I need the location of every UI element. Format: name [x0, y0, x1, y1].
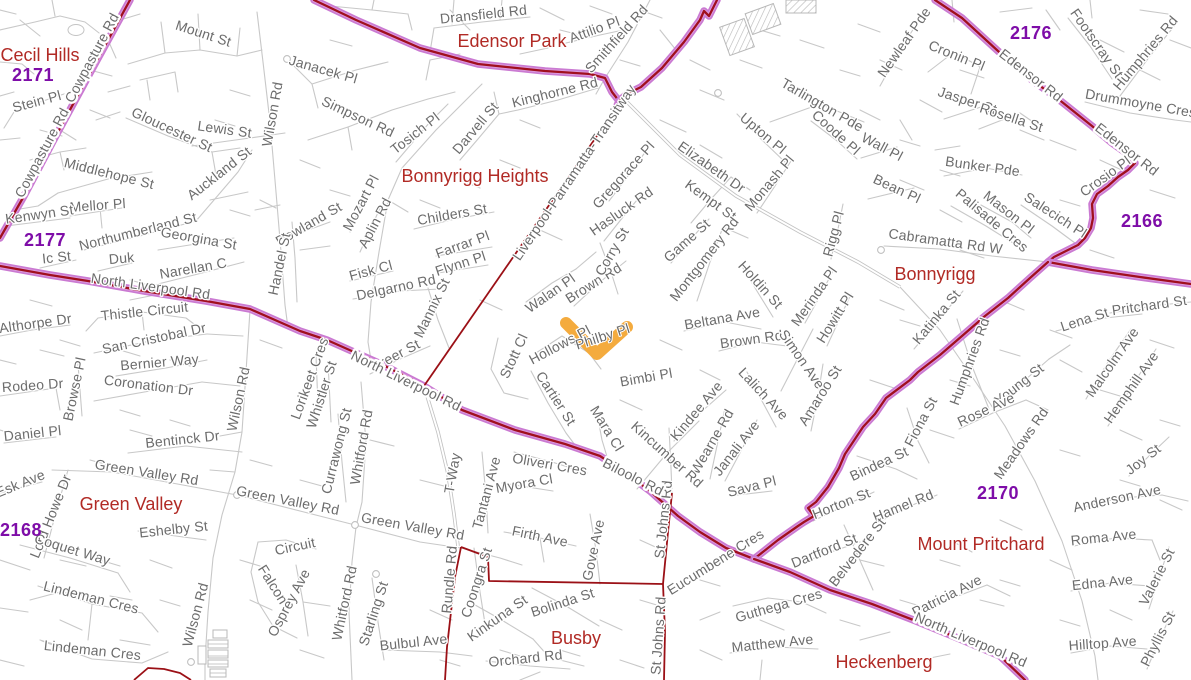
- svg-text:Ic St: Ic St: [41, 248, 72, 267]
- svg-text:Duk: Duk: [108, 249, 136, 267]
- svg-text:2166: 2166: [1121, 211, 1163, 231]
- svg-text:Bonnyrigg: Bonnyrigg: [894, 264, 975, 284]
- svg-text:Green Valley: Green Valley: [80, 494, 183, 514]
- svg-text:2171: 2171: [12, 65, 54, 85]
- svg-text:Busby: Busby: [551, 628, 601, 648]
- svg-text:Heckenberg: Heckenberg: [835, 652, 932, 672]
- svg-text:2168: 2168: [0, 520, 42, 540]
- svg-text:Mount Pritchard: Mount Pritchard: [917, 534, 1044, 554]
- svg-text:Bonnyrigg Heights: Bonnyrigg Heights: [401, 166, 548, 186]
- svg-text:2170: 2170: [977, 483, 1019, 503]
- svg-text:2177: 2177: [24, 230, 66, 250]
- svg-text:Cecil Hills: Cecil Hills: [0, 45, 79, 65]
- svg-text:Edensor Park: Edensor Park: [457, 31, 567, 51]
- svg-text:2176: 2176: [1010, 23, 1052, 43]
